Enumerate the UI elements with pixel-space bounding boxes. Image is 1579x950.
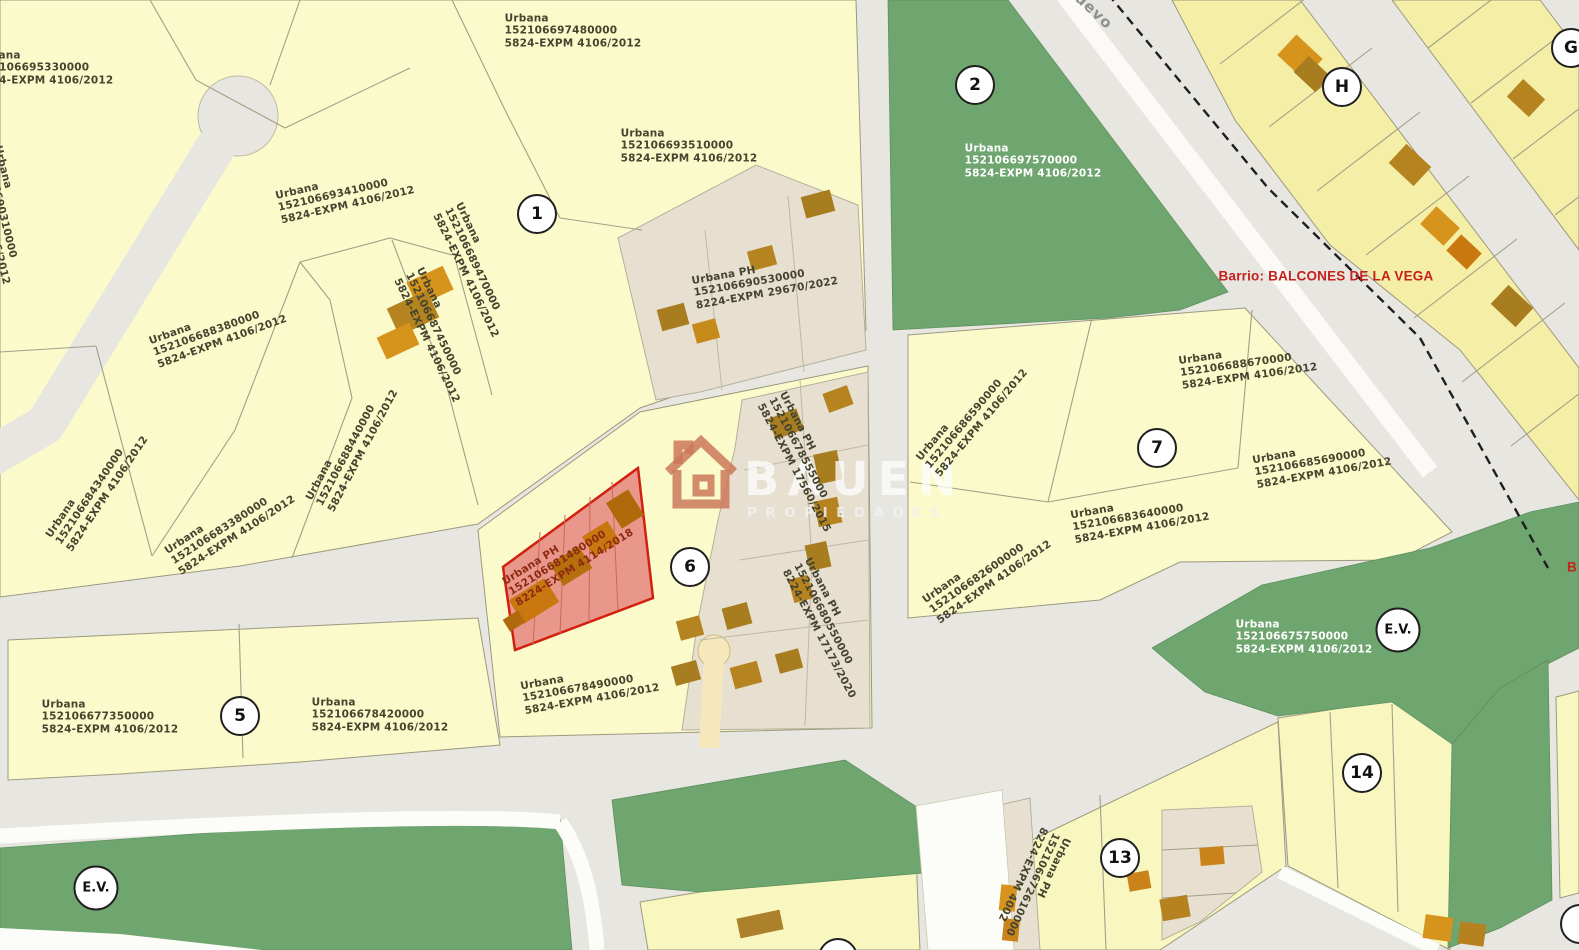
- zone-circle: 14: [1342, 753, 1382, 793]
- zone-circle: 2: [955, 65, 995, 105]
- ev-circle: E.V.: [1376, 608, 1421, 653]
- parcel-label: Urbana1521066975700005824-EXPM 4106/2012: [965, 142, 1102, 179]
- zone-circle: H: [1322, 67, 1362, 107]
- parcel-label: Urbana1521066773500005824-EXPM 4106/2012: [42, 698, 179, 735]
- parcel-label: Urbana1521066757500005824-EXPM 4106/2012: [1236, 618, 1373, 655]
- parcel-label: Urbana1521066935100005824-EXPM 4106/2012: [621, 127, 758, 164]
- parcel-label: Urbana1521066974800005824-EXPM 4106/2012: [505, 12, 642, 49]
- zone-circle: 6: [670, 547, 710, 587]
- barrio-label-partial: B: [1567, 560, 1577, 575]
- parcel-label: Urbana1521066953300005824-EXPM 4106/2012: [0, 49, 113, 86]
- parcel-label: Urbana1521066784200005824-EXPM 4106/2012: [312, 696, 449, 733]
- zone-circle: 13: [1100, 838, 1140, 878]
- zone-circle: 7: [1137, 428, 1177, 468]
- zone-circle: 5: [220, 696, 260, 736]
- cadastral-map-viewport[interactable]: BAUEN PROPIEDADES Urbana1521066953300005…: [0, 0, 1579, 950]
- zone-circle: 1: [517, 194, 557, 234]
- ev-circle: E.V.: [74, 866, 119, 911]
- barrio-label: Barrio: BALCONES DE LA VEGA: [1219, 269, 1434, 284]
